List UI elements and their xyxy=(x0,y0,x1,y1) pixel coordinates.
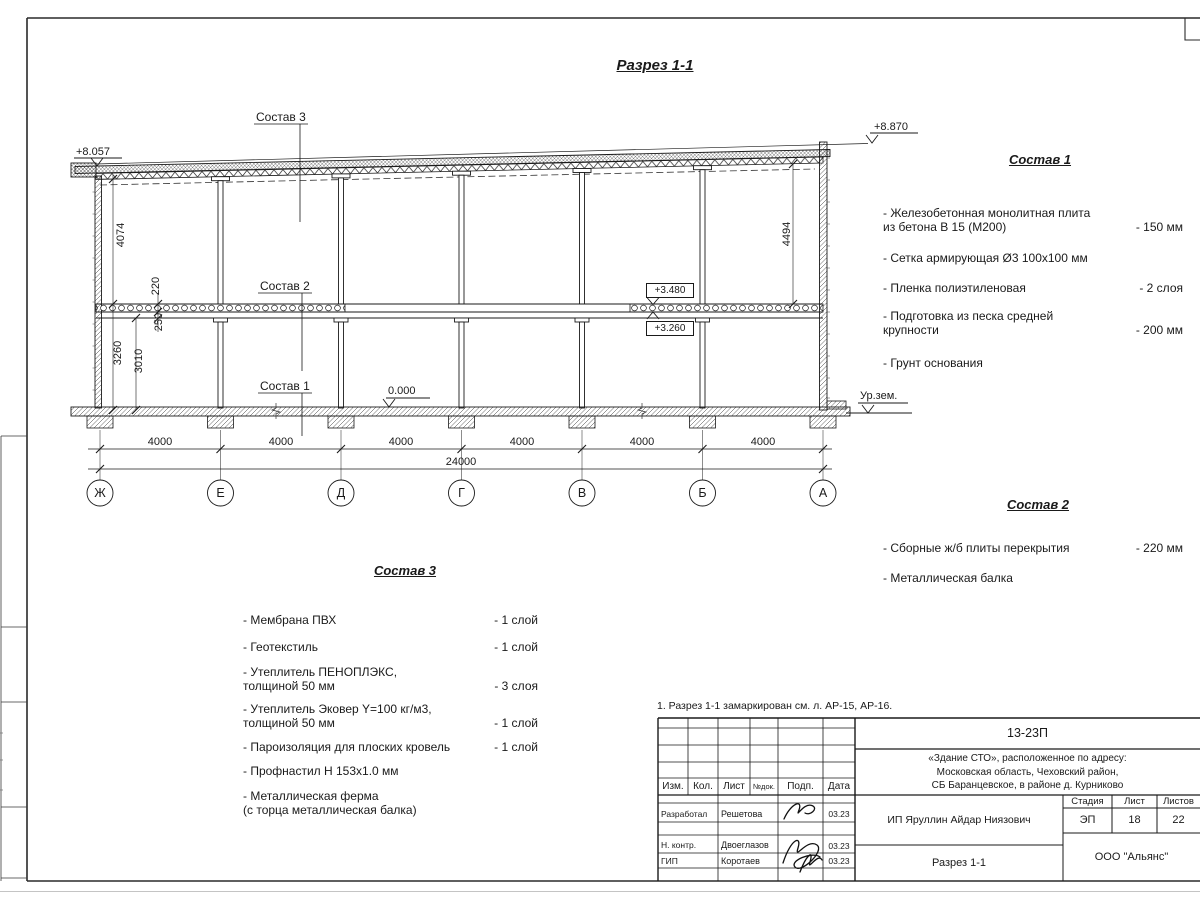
dim-3010: 3010 xyxy=(133,339,145,383)
sheet-number: 18 xyxy=(1112,808,1157,833)
col-header-list: Лист xyxy=(718,778,750,795)
row-role-gip: ГИП xyxy=(661,854,717,868)
col-header-kol: Кол. xyxy=(688,778,718,795)
signature-dvoeglazov-korotaev xyxy=(783,840,820,868)
sheet-label: Лист xyxy=(1112,795,1157,808)
elevation-slab-bottom: +3.260 xyxy=(646,321,694,336)
dim-3260: 3260 xyxy=(112,331,124,375)
row-date-1: 03.23 xyxy=(824,807,854,822)
axis-e: Е xyxy=(208,480,234,506)
leader-sostav1: Состав 1 xyxy=(260,379,310,393)
row-role-nkontr: Н. контр. xyxy=(661,838,717,853)
object-description: «Здание СТО», расположенное по адресу: М… xyxy=(860,752,1195,793)
left-wall xyxy=(95,176,102,408)
bay-dim-1: 4000 xyxy=(130,436,190,448)
sostav2-heading: Состав 2 xyxy=(988,497,1088,512)
dim-4494: 4494 xyxy=(781,212,793,256)
list-item: - Сетка армирующая Ø3 100х100 мм xyxy=(883,252,1183,266)
bay-dim-2: 4000 xyxy=(251,436,311,448)
list-item: - Металлическая балка xyxy=(883,572,1183,586)
roof-left-cap xyxy=(71,163,96,177)
row-date-3: 03.23 xyxy=(824,855,854,868)
list-item: - Сборные ж/б плиты перекрытия- 220 мм xyxy=(883,542,1183,556)
list-item: - Мембрана ПВХ- 1 слой xyxy=(243,614,538,628)
list-item: - Подготовка из песка средней крупности-… xyxy=(883,310,1183,337)
left-stamp-strip xyxy=(0,436,27,881)
list-item: - Пленка полиэтиленовая- 2 слоя xyxy=(883,282,1183,296)
bay-dim-3: 4000 xyxy=(371,436,431,448)
lower-columns xyxy=(214,318,710,408)
bay-dim-6: 4000 xyxy=(733,436,793,448)
sostav1-heading: Состав 1 xyxy=(990,152,1090,167)
list-item: - Утеплитель ПЕНОПЛЭКС, толщиной 50 мм- … xyxy=(243,666,538,693)
mid-floor xyxy=(96,304,823,318)
list-item: - Геотекстиль- 1 слой xyxy=(243,641,538,655)
customer-name: ИП Яруллин Айдар Ниязович xyxy=(857,795,1061,845)
elevation-roof-right: +8.870 xyxy=(874,121,908,133)
elevation-slab-top: +3.480 xyxy=(646,283,694,298)
leader-sostav2: Состав 2 xyxy=(260,279,310,293)
signatures xyxy=(783,804,822,872)
col-header-izm: Изм. xyxy=(658,778,688,795)
axis-zh: Ж xyxy=(87,480,113,506)
row-name-reshetova: Решетова xyxy=(721,806,777,822)
total-dim: 24000 xyxy=(431,456,491,468)
hollow-core-slab-left xyxy=(96,304,345,312)
drawing-title: Разрез 1-1 xyxy=(598,57,712,74)
hollow-core-slab-right xyxy=(630,304,823,312)
elevation-ground: Ур.зем. xyxy=(860,390,897,402)
axis-d: Д xyxy=(328,480,354,506)
col-header-ndok: №док. xyxy=(750,778,778,795)
right-wall xyxy=(820,142,828,410)
elevation-floor: 0.000 xyxy=(388,385,416,397)
bay-dim-4: 4000 xyxy=(492,436,552,448)
doc-number: 13-23П xyxy=(855,718,1200,749)
axis-a: А xyxy=(810,480,836,506)
row-name-korotaev: Коротаев xyxy=(721,854,777,868)
drawing-note: 1. Разрез 1-1 замаркирован см. л. АР-15,… xyxy=(657,700,892,712)
signature-reshetova xyxy=(784,804,815,819)
drawing-sheet: Разрез 1-1 +8.057 +8.870 0.000 Ур.зем. +… xyxy=(0,0,1200,900)
list-item: - Железобетонная монолитная плита из бет… xyxy=(883,207,1183,234)
right-ground-ledge xyxy=(827,401,846,409)
col-header-data: Дата xyxy=(823,778,855,795)
elevation-roof-left: +8.057 xyxy=(76,146,110,158)
axis-g: Г xyxy=(449,480,475,506)
stage-value: ЭП xyxy=(1063,808,1112,833)
sheets-total: 22 xyxy=(1157,808,1200,833)
roof xyxy=(71,144,868,186)
leader-sostav3: Состав 3 xyxy=(256,110,306,124)
sostav3-heading: Состав 3 xyxy=(355,563,455,578)
list-item: - Профнастил Н 153х1.0 мм xyxy=(243,765,538,779)
row-name-dvoeglazov: Двоеглазов xyxy=(721,838,779,853)
list-item: - Грунт основания xyxy=(883,357,1183,371)
list-item: - Пароизоляция для плоских кровель- 1 сл… xyxy=(243,741,538,755)
foundation-pads xyxy=(87,416,836,428)
bay-dim-5: 4000 xyxy=(612,436,672,448)
axis-v: В xyxy=(569,480,595,506)
sheets-label: Листов xyxy=(1157,795,1200,808)
row-date-2: 03.23 xyxy=(824,839,854,853)
list-item: - Утеплитель Эковер Y=100 кг/м3, толщино… xyxy=(243,703,538,730)
section-name: Разрез 1-1 xyxy=(857,845,1061,881)
company-name: ООО "Альянс" xyxy=(1063,833,1200,881)
row-role-razrabotal: Разработал xyxy=(661,806,717,822)
dim-4074: 4074 xyxy=(115,213,127,257)
stage-label: Стадия xyxy=(1063,795,1112,808)
col-header-podp: Подп. xyxy=(778,778,823,795)
axis-b: Б xyxy=(690,480,716,506)
list-item: - Металлическая ферма (с торца металличе… xyxy=(243,790,538,817)
dim-250: 250 xyxy=(153,300,165,344)
